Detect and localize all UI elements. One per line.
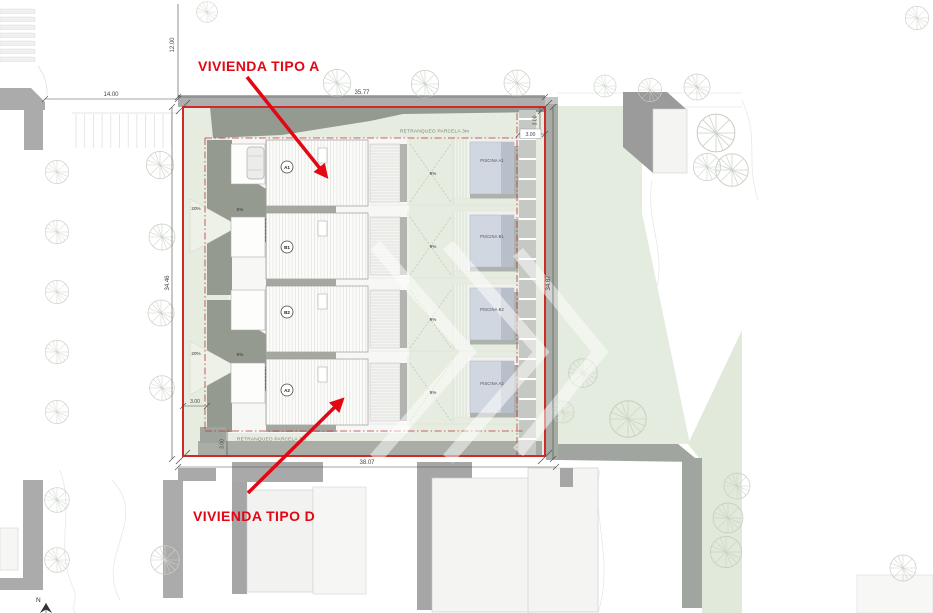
site-plan-svg: 35.77 14.00 12.00 34.87 34.46 38.07 3.00… — [0, 0, 933, 613]
dim-street-vertical: 12.00 — [170, 37, 176, 53]
pool-label-b2: PISCINA B2 — [480, 307, 504, 312]
ramp-label-3: 9% — [430, 317, 437, 322]
neighbor-s2-house — [432, 478, 532, 612]
dim-left-height: 34.46 — [165, 275, 171, 291]
slope-upper-roof: 5% — [237, 207, 244, 212]
sidewalk-bar-upper — [24, 102, 43, 150]
crosswalk-stripes — [0, 9, 35, 62]
car-icon — [247, 147, 264, 179]
dim-top-width: 35.77 — [354, 90, 370, 96]
neighbor-s1-shadow — [232, 482, 247, 594]
setback-note-bottom: RETRANQUEO PARCELA 3m — [237, 437, 306, 443]
pool-label-a1: PISCINA A1 — [480, 158, 504, 163]
neighbor-s2-wing — [528, 468, 598, 612]
dim-bottom-width: 38.07 — [359, 460, 375, 466]
unit-badge-b1: B1 — [284, 245, 290, 250]
ramp-label-4: 9% — [430, 390, 437, 395]
dim-street-offset: 14.00 — [103, 92, 119, 98]
wall-bottom — [558, 444, 700, 462]
site-plan-drawing: 35.77 14.00 12.00 34.87 34.46 38.07 3.00… — [0, 0, 933, 613]
ramp-label-2: 9% — [430, 244, 437, 249]
neighbor-ne-house — [653, 109, 687, 173]
unit-badge-b2: B2 — [284, 310, 290, 315]
annotation-vivienda-tipo-d: VIVIENDA TIPO D — [193, 508, 315, 524]
north-label: N — [36, 597, 41, 604]
neighbor-se-house — [857, 575, 933, 613]
dim-setback-right: 3.00 — [526, 132, 536, 138]
neighbor-w-house — [0, 528, 18, 570]
dim-right-height: 34.87 — [546, 275, 552, 291]
wall-bottom-vert — [682, 458, 702, 608]
dim-setback-left: 3.00 — [190, 399, 200, 405]
slope-lower-ramp: 20% — [191, 351, 200, 356]
sidewalk-bar-lower — [23, 480, 43, 590]
pool-label-b1: PISCINA B1 — [480, 234, 504, 239]
sidewalk-foot — [0, 578, 43, 590]
north-arrow: N — [36, 597, 52, 613]
setback-note-top: RETRANQUEO PARCELA 3m — [400, 129, 469, 135]
sidewalk-bar-east — [163, 480, 183, 598]
curb-corner-curve — [38, 66, 47, 95]
slope-upper-ramp: 20% — [191, 206, 200, 211]
neighbor-s1-wing — [313, 487, 366, 594]
dim-setback-top: 3.00 — [533, 115, 539, 125]
slope-lower-roof: 5% — [237, 352, 244, 357]
shadow-bottom-band — [198, 441, 542, 455]
unit-badge-a2: A2 — [284, 388, 290, 393]
parking-stripes — [72, 113, 178, 148]
ramp-label-1: 9% — [430, 171, 437, 176]
neighbor-s2-wing-shadow — [560, 468, 573, 487]
side-path — [519, 110, 536, 456]
annotation-vivienda-tipo-a: VIVIENDA TIPO A — [198, 58, 320, 74]
dim-setback-bottom: 3.00 — [220, 439, 226, 449]
neighbor-s1-house — [247, 490, 313, 592]
unit-badge-a1: A1 — [284, 165, 290, 170]
pool-label-a2: PISCINA A2 — [480, 381, 504, 386]
